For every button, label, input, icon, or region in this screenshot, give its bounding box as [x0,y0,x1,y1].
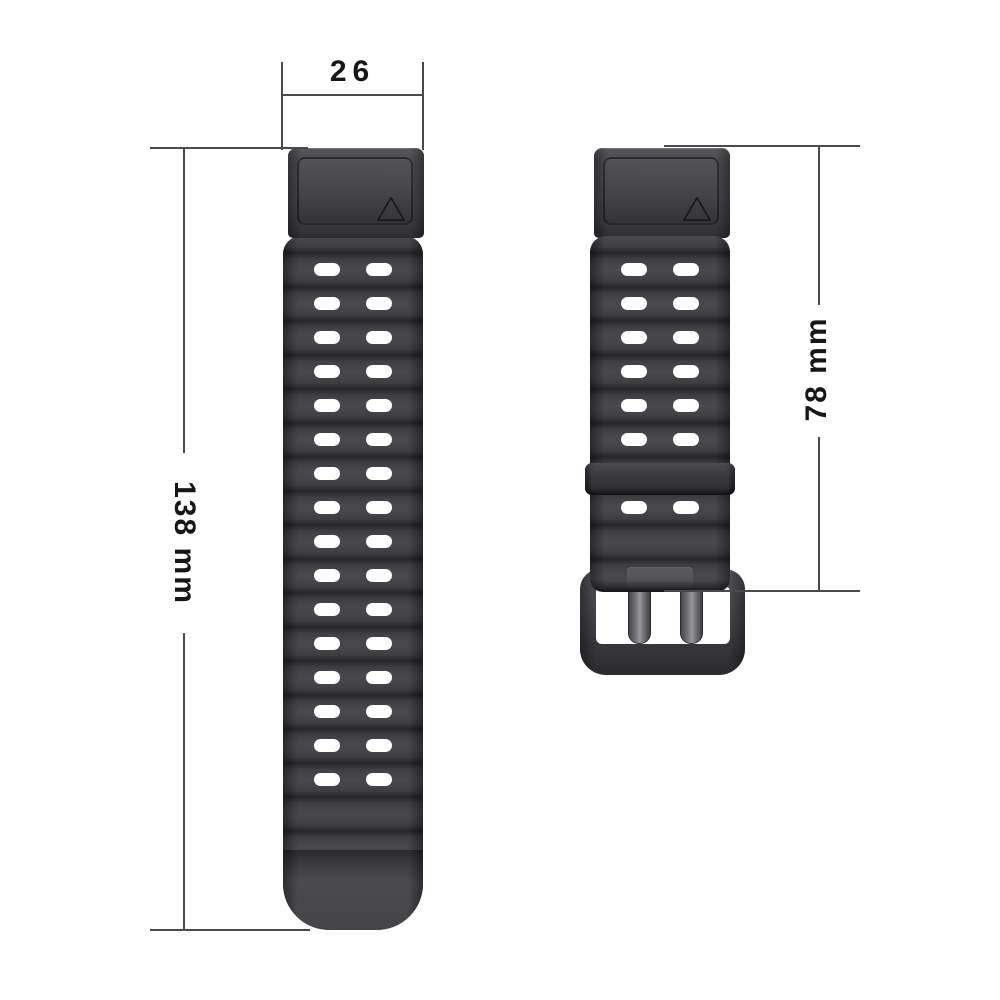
short-strap-connector [594,148,730,238]
strap-hole [621,501,647,514]
strap-hole [314,365,340,378]
strap-hole [366,671,392,684]
dimension-line-length [183,633,185,931]
strap-hole [314,671,340,684]
strap-hole [673,501,699,514]
strap-hole [673,331,699,344]
strap-hole [314,569,340,582]
strap-hole [314,501,340,514]
strap-hole [366,603,392,616]
watch-band-dimension-diagram: 26 138 mm 78 mm [0,0,1000,1000]
strap-hole [621,399,647,412]
strap-hole [673,297,699,310]
buckle-length-dimension-label: 78 mm [801,289,833,449]
dimension-line-length [183,147,185,453]
strap-hole [314,637,340,650]
buckle-window [596,586,730,644]
strap-hole [366,773,392,786]
strap-hole [673,263,699,276]
long-strap-connector [288,148,424,238]
strap-hole [673,365,699,378]
extension-line [150,929,310,931]
strap-hole [673,433,699,446]
strap-hole [314,535,340,548]
strap-hole [314,297,340,310]
long-strap-body [283,236,423,930]
extension-line [150,147,308,149]
strap-hole [314,399,340,412]
dimension-line-buckle-length [818,437,820,592]
strap-hole [314,433,340,446]
strap-hole [366,637,392,650]
extension-line [664,145,860,147]
strap-hole [314,263,340,276]
strap-hole [366,501,392,514]
strap-hole [366,569,392,582]
length-dimension-label: 138 mm [168,453,200,633]
strap-hole [366,263,392,276]
extension-leader-line [664,590,860,592]
dimension-line-buckle-length [818,145,820,305]
strap-hole [314,773,340,786]
dimension-line-width [281,94,424,96]
short-strap-body [590,236,730,592]
strap-hole [621,297,647,310]
width-dimension-label: 26 [281,56,424,88]
strap-hole [621,331,647,344]
strap-hole [673,399,699,412]
strap-hole [621,263,647,276]
strap-hole [314,603,340,616]
strap-hole [314,331,340,344]
strap-hole [314,467,340,480]
strap-hole [621,365,647,378]
strap-hole [314,739,340,752]
strap-hole [314,705,340,718]
strap-hole [366,467,392,480]
strap-hole [366,433,392,446]
strap-hole [366,399,392,412]
strap-hole [366,705,392,718]
strap-hole [366,365,392,378]
strap-hole [366,297,392,310]
strap-hole [621,433,647,446]
long-strap-holes [283,236,423,930]
strap-hole [366,535,392,548]
strap-hole [366,331,392,344]
band-keeper [585,463,735,495]
short-strap-holes [590,236,730,592]
strap-hole [366,739,392,752]
triangle-mark-icon [681,195,713,223]
triangle-mark-icon [375,195,407,223]
